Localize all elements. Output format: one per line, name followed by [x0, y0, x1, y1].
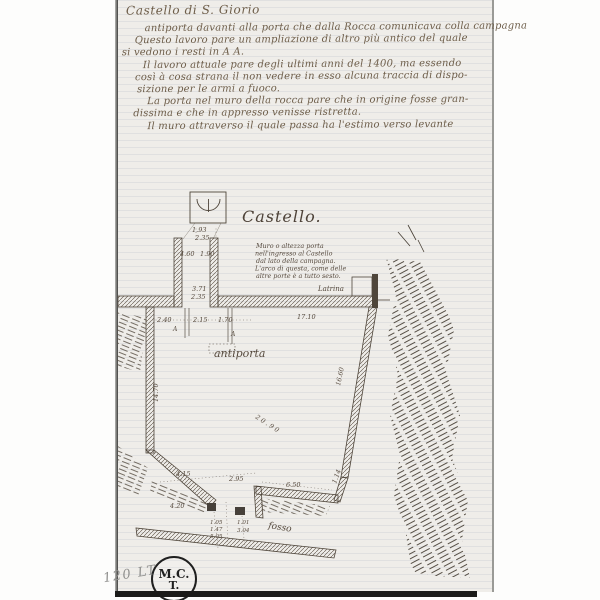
dimension-label: 4.60 — [179, 250, 194, 258]
dimension-label: 1.70 — [218, 316, 232, 324]
stamp-text-top: M.C. — [159, 568, 190, 580]
courtyard-left-wall — [146, 307, 154, 453]
stamp-text-bottom: T. — [169, 580, 180, 591]
gate-tower-left-wall — [174, 238, 182, 307]
dimension-label: 1.93 — [192, 226, 206, 234]
plan-note: Muro o altezza porta nell'ingresso al Ca… — [254, 242, 346, 280]
dimension-label: 2.35 — [194, 234, 209, 242]
castle-plan-drawing: Castello. Muro o altezza porta nell'ingr… — [0, 0, 600, 600]
dimension-label: 17.10 — [297, 313, 316, 321]
dimension-label: 20.90 — [253, 412, 282, 435]
rocca-wall-right — [218, 296, 377, 307]
dimension-label: 2.35 — [190, 293, 205, 301]
dimension-label: 1.90 — [200, 250, 214, 258]
courtyard-right-wall — [341, 307, 377, 478]
dimension-label: 2.95 — [228, 475, 243, 483]
marker-a-label: A — [172, 326, 178, 333]
note-line: altre porte è a tutto sesto. — [256, 272, 341, 280]
dimension-label: 3.71 — [192, 285, 206, 293]
dimension-label: 16.60 — [334, 367, 346, 387]
scanned-page: Castello di S. Giorio antiporta davanti … — [0, 0, 600, 600]
outer-ditch-wall — [136, 528, 336, 558]
marker-a-label: A — [230, 331, 236, 338]
dimension-label: 1.01 — [237, 520, 249, 526]
dimension-label: 2.40 — [156, 316, 171, 324]
label-latrina: Latrina — [317, 285, 344, 293]
gate-tower-right-wall — [210, 238, 218, 307]
dimension-label: 4.15 — [175, 470, 190, 478]
dimension-label: 2.15 — [192, 316, 207, 324]
dimension-label: 3.04 — [237, 528, 250, 534]
gate-pillars — [207, 503, 245, 515]
dimension-label: 14.70 — [152, 383, 160, 402]
label-fosso: fosso — [267, 521, 293, 535]
dimension-label: 4.20 — [169, 502, 184, 510]
dimension-label: 1.47 — [210, 527, 223, 533]
dimension-label: 1.05 — [210, 520, 223, 526]
dimension-label: 5.05 — [210, 534, 223, 540]
plan-title-label: Castello. — [242, 207, 322, 226]
page-bottom-edge — [115, 591, 477, 597]
label-antiporta: antiporta — [214, 347, 265, 360]
dimension-label: 6.50 — [286, 481, 300, 489]
rocca-wall-left — [118, 296, 174, 307]
